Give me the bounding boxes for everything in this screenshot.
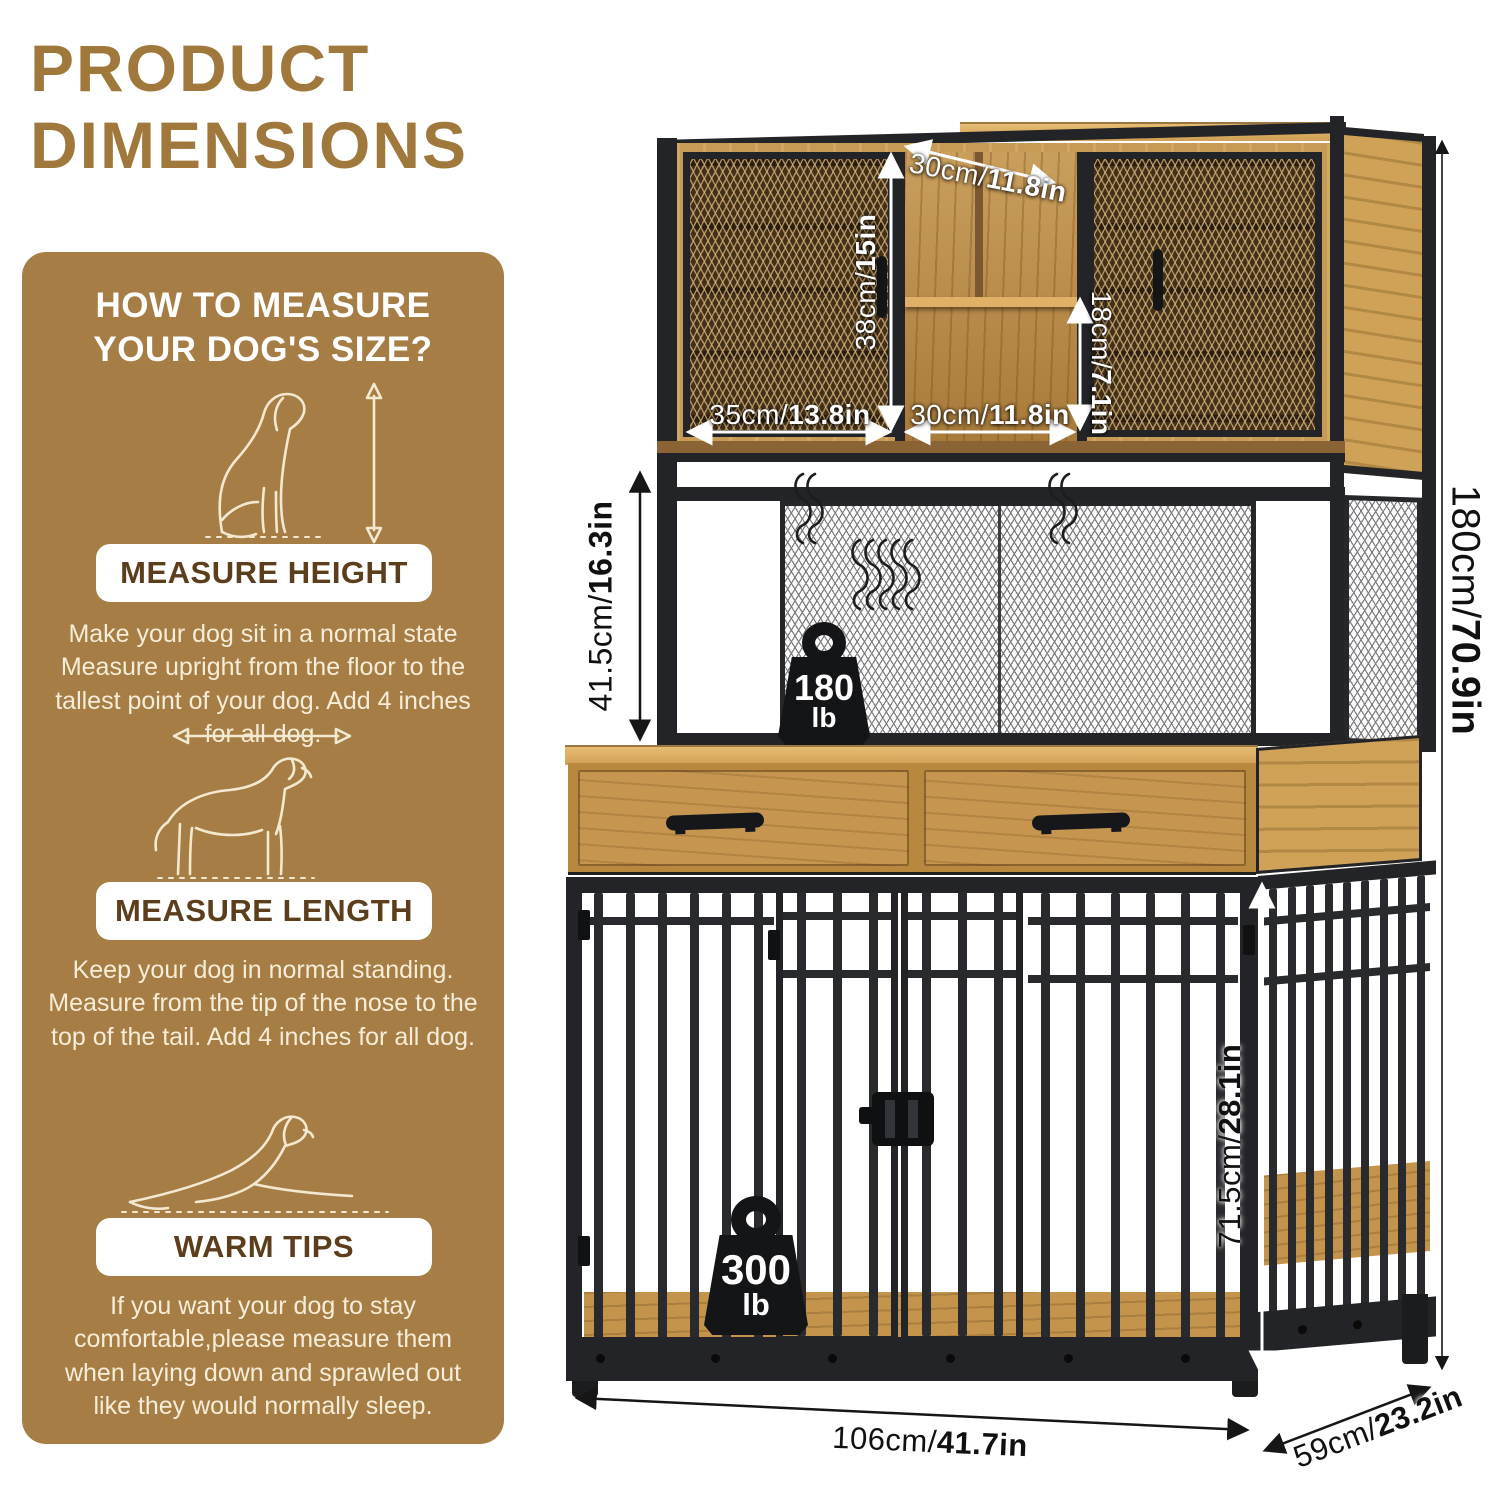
dim-overall-height: 180cm/70.9in bbox=[1443, 485, 1488, 736]
dimension-arrows bbox=[0, 0, 1500, 1500]
dim-middle-width: 30cm/11.8in bbox=[910, 399, 1070, 431]
dim-crate-height: 71.5cm/28.1in bbox=[1212, 1044, 1248, 1249]
dim-shelf-height: 18cm/7.1in bbox=[1085, 290, 1117, 435]
dim-left-door-width: 35cm/13.8in bbox=[709, 399, 870, 431]
infographic: PRODUCT DIMENSIONS HOW TO MEASURE YOUR D… bbox=[0, 0, 1500, 1500]
dim-hutch-height: 38cm/15in bbox=[850, 214, 882, 351]
dim-middle-section-height: 41.5cm/16.3in bbox=[583, 500, 620, 711]
